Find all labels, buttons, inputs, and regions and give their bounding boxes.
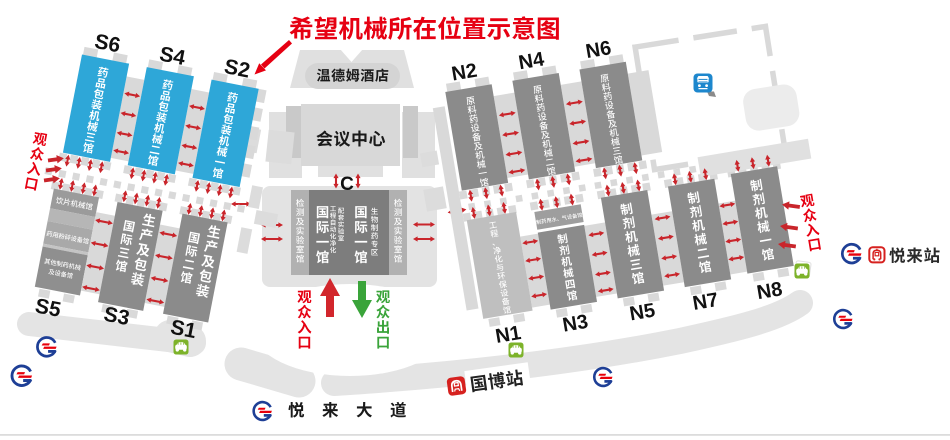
svg-text:N8: N8 bbox=[755, 278, 784, 304]
svg-text:S3: S3 bbox=[102, 303, 132, 330]
svg-text:S5: S5 bbox=[33, 294, 63, 322]
svg-text:S6: S6 bbox=[93, 30, 123, 57]
svg-text:N4: N4 bbox=[517, 48, 547, 74]
svg-text:S4: S4 bbox=[158, 43, 188, 71]
svg-text:N5: N5 bbox=[628, 300, 657, 326]
svg-text:C: C bbox=[340, 174, 354, 195]
svg-text:S1: S1 bbox=[169, 316, 199, 344]
svg-text:S2: S2 bbox=[222, 55, 252, 82]
svg-text:N3: N3 bbox=[561, 311, 590, 337]
svg-text:N6: N6 bbox=[584, 37, 613, 63]
svg-text:N7: N7 bbox=[691, 289, 720, 315]
svg-text:N2: N2 bbox=[450, 60, 479, 86]
